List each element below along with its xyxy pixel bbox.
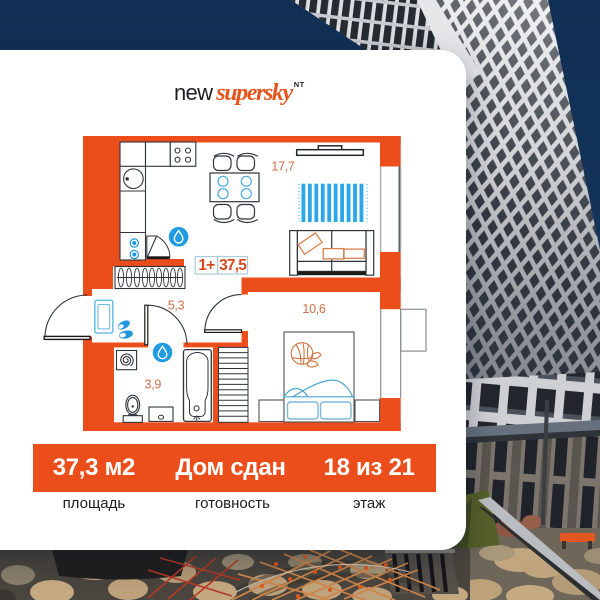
svg-text:10,6: 10,6 — [302, 302, 325, 316]
svg-text:1+: 1+ — [198, 257, 215, 274]
svg-text:37,5: 37,5 — [219, 257, 247, 274]
svg-text:3,9: 3,9 — [145, 378, 162, 392]
svg-text:17,7: 17,7 — [271, 160, 294, 174]
svg-text:5,3: 5,3 — [168, 299, 185, 313]
